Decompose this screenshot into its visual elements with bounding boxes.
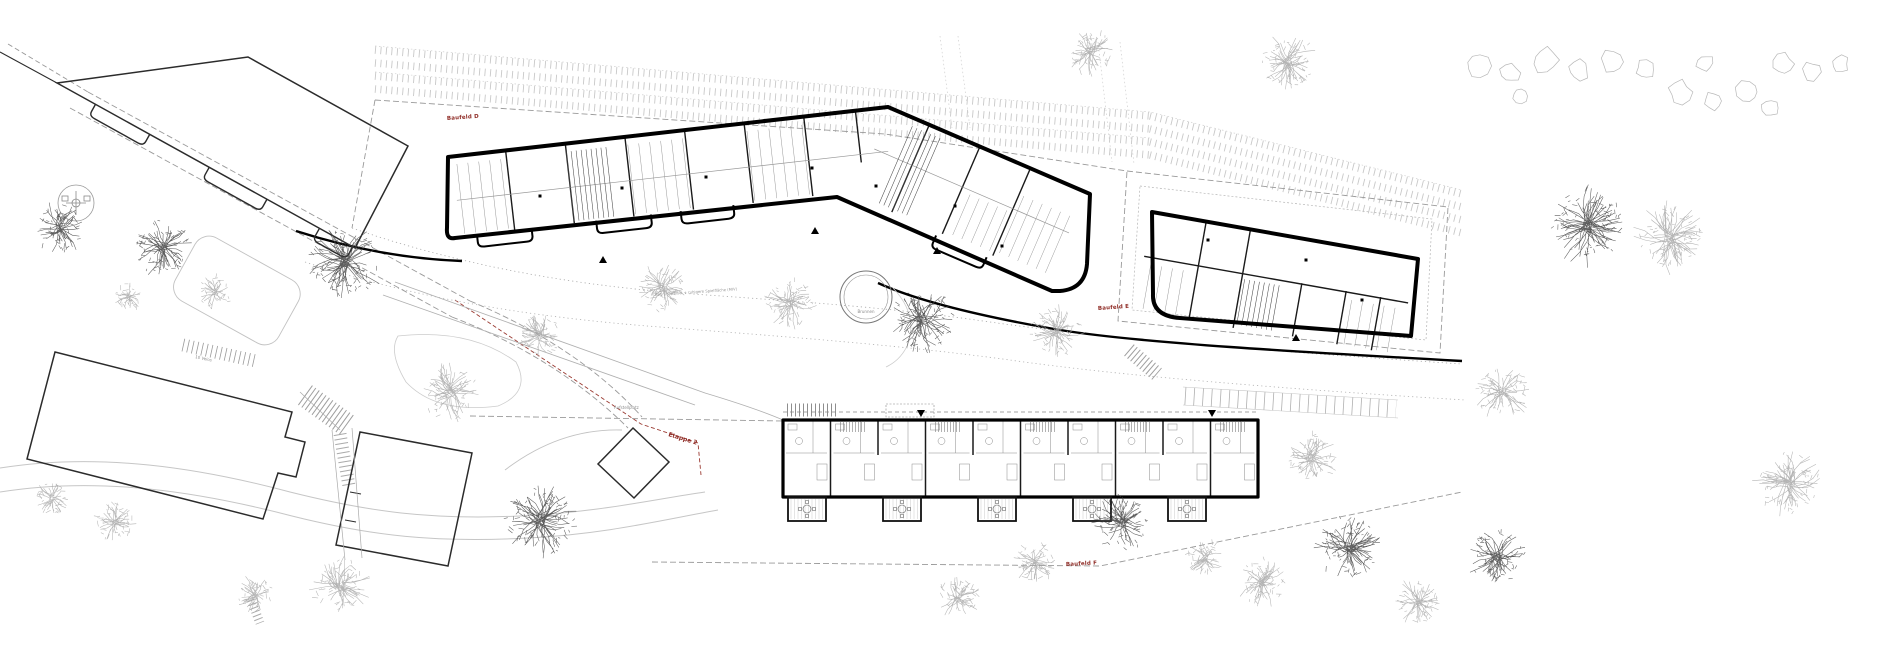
tree bbox=[1289, 431, 1337, 479]
shrub-icon bbox=[1569, 59, 1588, 81]
entrance-markers-d bbox=[599, 227, 941, 263]
tree bbox=[1470, 529, 1525, 582]
railway-tracks-icon bbox=[375, 50, 1462, 233]
tree bbox=[1263, 37, 1316, 90]
tree bbox=[1752, 452, 1820, 517]
shrub-icon bbox=[1601, 50, 1623, 72]
shrub-icon bbox=[1636, 60, 1653, 77]
label-baufeld-f: Baufeld F bbox=[1066, 560, 1098, 568]
site-edge-thick-line-west bbox=[296, 231, 462, 261]
hatch-strips bbox=[183, 345, 1398, 623]
site-plan-drawing: Brunnen Baufeld D Baufeld E Baufeld F Et… bbox=[0, 0, 1880, 661]
shrub-icon bbox=[1534, 46, 1560, 72]
shrubs-layer bbox=[1468, 46, 1848, 115]
tree bbox=[1240, 557, 1285, 607]
existing-building-southwest-1 bbox=[27, 352, 305, 519]
building-baufeld-e bbox=[1143, 212, 1418, 352]
tree bbox=[115, 283, 140, 310]
labels-layer: Baufeld D Baufeld E Baufeld F Etappe 2 B… bbox=[195, 114, 1130, 568]
tree bbox=[1092, 494, 1148, 550]
existing-building-north bbox=[57, 57, 408, 248]
existing-buildings bbox=[0, 52, 669, 566]
baufeld-d-outline bbox=[447, 107, 1090, 291]
entrance-markers-f bbox=[917, 410, 1216, 417]
baufeld-d-interior bbox=[457, 111, 1070, 273]
shrub-icon bbox=[1696, 57, 1713, 72]
etappe-2-boundary-red-dashed bbox=[455, 300, 701, 475]
shrub-icon bbox=[1773, 52, 1795, 73]
label-velo-parking: 10 Velos bbox=[195, 354, 213, 362]
building-aufstellplatz bbox=[598, 428, 669, 498]
tree bbox=[136, 220, 192, 274]
shrub-icon bbox=[1761, 101, 1778, 115]
tree bbox=[639, 265, 684, 312]
tree bbox=[1396, 581, 1440, 623]
tree bbox=[424, 363, 479, 422]
shrub-icon bbox=[1513, 89, 1528, 104]
tree bbox=[1185, 539, 1221, 574]
tree bbox=[516, 316, 557, 357]
fountain: Brunnen bbox=[840, 271, 892, 323]
stair-crossing-hatch bbox=[305, 395, 348, 426]
tree bbox=[1014, 543, 1055, 582]
label-baufeld-d: Baufeld D bbox=[447, 114, 480, 122]
shrub-icon bbox=[1735, 81, 1757, 102]
baufeld-e-outline bbox=[1152, 212, 1418, 336]
baufeld-d-canopies bbox=[477, 205, 987, 268]
shrub-icon bbox=[1833, 55, 1848, 72]
building-baufeld-f bbox=[783, 404, 1258, 521]
fountain-circle bbox=[840, 271, 892, 323]
label-etappe-2: Etappe 2 bbox=[667, 431, 698, 446]
paved-play-area bbox=[168, 230, 306, 350]
tree bbox=[1634, 201, 1703, 275]
tree bbox=[239, 576, 272, 612]
tree bbox=[1030, 304, 1085, 357]
shrub-icon bbox=[1500, 63, 1521, 80]
playground-circle bbox=[58, 185, 94, 221]
tree bbox=[1476, 369, 1529, 417]
tree bbox=[504, 486, 577, 559]
shrub-icon bbox=[1468, 55, 1492, 78]
tree bbox=[1072, 30, 1113, 76]
tree bbox=[940, 577, 979, 615]
shrub-icon bbox=[1803, 62, 1822, 81]
tree bbox=[764, 278, 816, 330]
tree bbox=[1551, 185, 1622, 268]
tree bbox=[893, 293, 954, 353]
fountain-label: Brunnen bbox=[858, 309, 875, 314]
site-edge-thick-line bbox=[878, 283, 1462, 361]
shrub-icon bbox=[1668, 79, 1693, 105]
tree bbox=[309, 556, 370, 611]
label-aufstellplatz: Aufstellplatz bbox=[614, 405, 639, 410]
crossing-baufeld-e-hatch bbox=[1129, 350, 1157, 374]
tree bbox=[309, 230, 380, 298]
entrance-canopies-north bbox=[91, 104, 353, 256]
path-stairs-hatch bbox=[340, 434, 349, 486]
baufeld-f-interior bbox=[786, 421, 1255, 496]
tree bbox=[94, 502, 136, 540]
site-plan-canvas: Brunnen Baufeld D Baufeld E Baufeld F Et… bbox=[0, 0, 1880, 661]
shrub-icon bbox=[1705, 92, 1722, 110]
tree bbox=[1314, 516, 1380, 577]
tree bbox=[37, 484, 68, 514]
site-boundary-dashed bbox=[8, 44, 1462, 566]
building-baufeld-d bbox=[447, 107, 1090, 291]
existing-building-southwest-2 bbox=[336, 432, 472, 566]
tree bbox=[201, 273, 231, 309]
label-baufeld-e: Baufeld E bbox=[1098, 304, 1130, 312]
baufeld-f-terraces bbox=[788, 497, 1206, 521]
trees-layer bbox=[37, 30, 1820, 622]
